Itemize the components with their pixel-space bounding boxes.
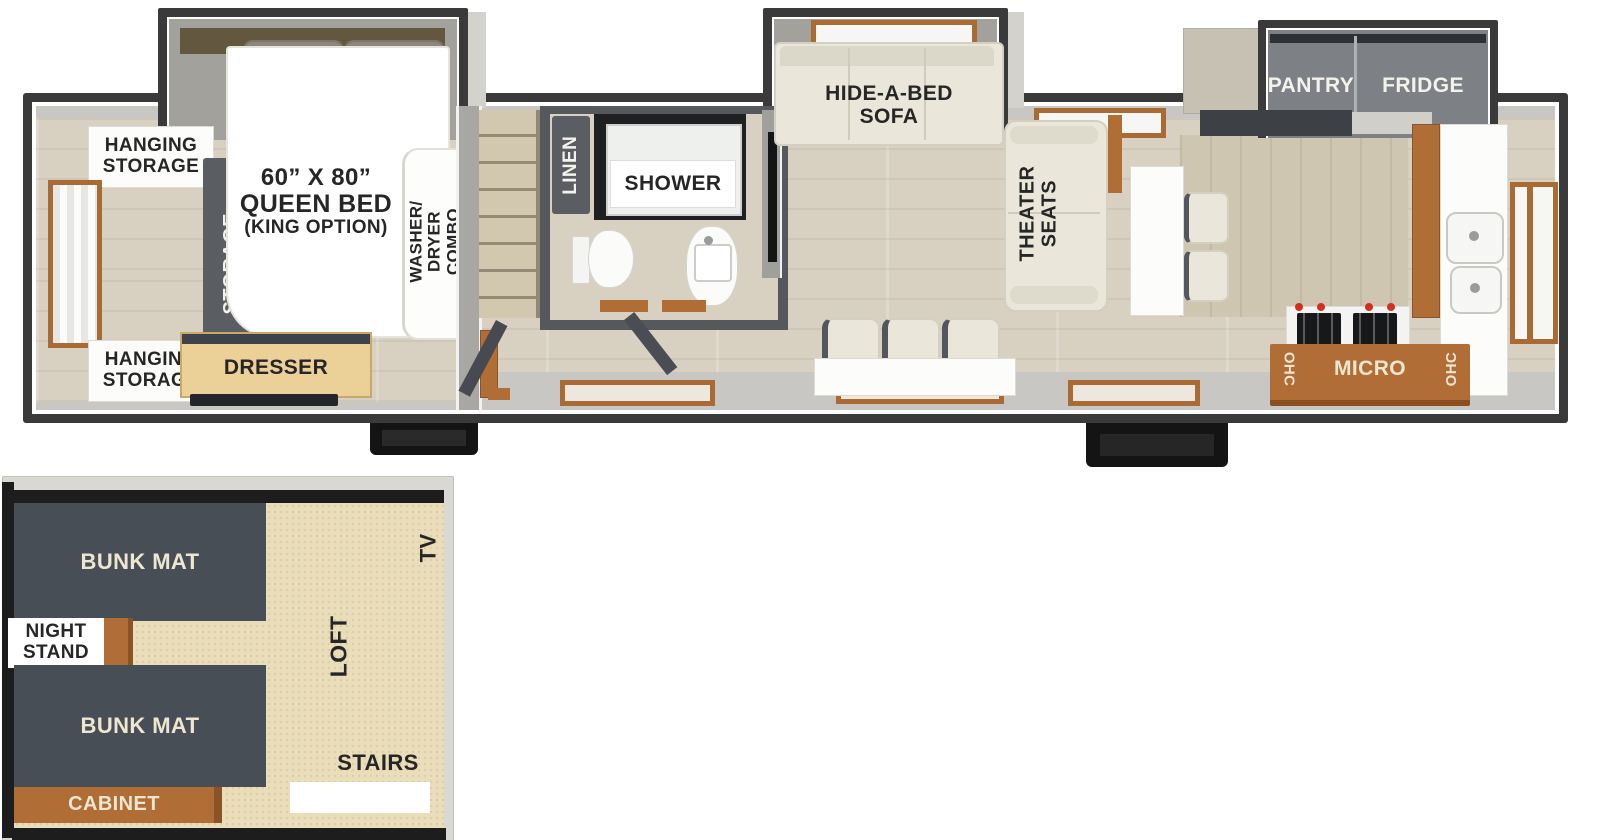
kitchen-right-window — [1510, 182, 1558, 344]
bed-size-label: 60” X 80” — [261, 165, 371, 191]
bath-sink-faucet — [704, 236, 713, 245]
dresser: DRESSER — [180, 332, 372, 398]
bath-threshold-right — [662, 300, 706, 312]
pantry-fridge-top-rail — [1270, 34, 1486, 43]
kitchen-ohc-counter: OHC MICRO OHC — [1270, 344, 1470, 406]
washer-dryer-label: WASHER/ DRYER COMBO — [407, 201, 462, 283]
ohc-right-label: OHC — [1444, 352, 1460, 387]
bed-option-label: (KING OPTION) — [244, 218, 387, 239]
loft-label: LOFT — [327, 615, 352, 677]
theater-label: THEATER SEATS — [1017, 166, 1060, 262]
loft-stairs-label: STAIRS — [337, 751, 418, 775]
theater-label-wrap: THEATER SEATS — [1004, 120, 1074, 308]
dinette-table — [1130, 166, 1184, 316]
bath-sink-basin — [694, 244, 732, 282]
bed-label-group: 60” X 80” QUEEN BED (KING OPTION) — [226, 150, 406, 254]
sofa-slideout-bevel — [1008, 12, 1024, 108]
dresser-label: DRESSER — [182, 342, 370, 394]
loft-bottom-wall — [12, 828, 446, 840]
night-stand-side — [104, 618, 133, 668]
shower-enclosure: SHOWER — [594, 114, 746, 220]
bunk-mat-top: BUNK MAT — [14, 503, 266, 621]
hanging-storage-top: HANGING STORAGE — [88, 126, 214, 188]
micro-label: MICRO — [1304, 344, 1436, 394]
main-floorplan: PANTRY FRIDGE HANGING STORAGE STORAGE FI… — [0, 0, 1600, 470]
bedroom-left-window — [48, 180, 102, 348]
living-tv — [768, 132, 777, 262]
ohc-right-wrap: OHC — [1436, 344, 1468, 394]
bath-threshold-left — [600, 300, 648, 312]
kitchen-sink-upper — [1446, 212, 1504, 264]
linen-closet: LINEN — [552, 116, 590, 214]
floorplan-page: PANTRY FRIDGE HANGING STORAGE STORAGE FI… — [0, 0, 1600, 840]
loft-stairs-label-wrap: STAIRS — [318, 750, 438, 776]
night-stand: NIGHT STAND — [8, 618, 104, 668]
dinette-chair-2 — [1184, 250, 1229, 302]
dinette-chair-1 — [1184, 192, 1229, 244]
loft-tv-label-wrap: TV — [408, 512, 448, 584]
loft-floorplan: BUNK MAT NIGHT STAND BUNK MAT CABINET LO… — [2, 476, 454, 840]
entry-step-main-tread — [1100, 434, 1214, 456]
bunk-mat-bottom: BUNK MAT — [14, 665, 266, 787]
kitchen-sink-lower — [1450, 266, 1502, 314]
dresser-mat — [190, 394, 338, 406]
bedroom-slideout-bevel — [468, 12, 486, 108]
loft-stairs-main — [479, 110, 540, 318]
hide-a-bed-sofa: HIDE-A-BED SOFA — [774, 42, 1004, 146]
bunk-mat-top-label: BUNK MAT — [81, 550, 200, 574]
loft-tv-label: TV — [416, 534, 440, 563]
loft-cabinet-label: CABINET — [68, 794, 160, 816]
loft-top-wall — [12, 490, 444, 503]
linen-label: LINEN — [561, 135, 582, 194]
kitchen-slideout-bevel — [1183, 28, 1263, 114]
sofa-label: HIDE-A-BED SOFA — [776, 74, 1002, 138]
door-mat-entry — [1068, 380, 1200, 406]
loft-stairs-opening — [290, 782, 430, 813]
entry-step-bedroom-tread — [382, 430, 466, 446]
ohc-left-wrap: OHC — [1272, 344, 1304, 394]
bedroom-door-sill — [488, 388, 510, 400]
theater-side-cabinet — [1108, 115, 1122, 193]
door-mat-hall — [560, 380, 715, 406]
bunk-mat-bottom-label: BUNK MAT — [81, 714, 200, 738]
loft-cabinet: CABINET — [14, 787, 222, 823]
island-counter — [814, 358, 1016, 396]
loft-label-wrap: LOFT — [316, 596, 362, 696]
bed-name-label: QUEEN BED — [240, 191, 392, 218]
kitchen-tall-cabinet — [1412, 124, 1440, 318]
toilet-bowl — [588, 230, 634, 288]
kitchen-top-counter — [1200, 110, 1352, 136]
ohc-left-label: OHC — [1280, 352, 1296, 387]
shower-label: SHOWER — [610, 160, 736, 208]
